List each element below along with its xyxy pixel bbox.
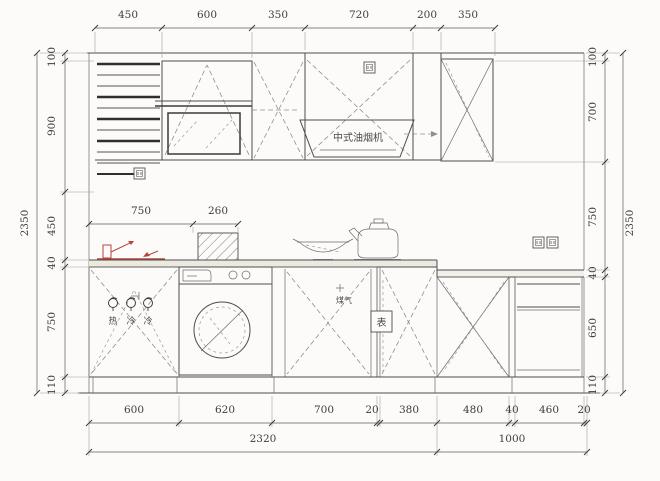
dim-bottom-3: 20: [365, 404, 378, 416]
dim-mid-0: 750: [131, 205, 151, 217]
outlet-icon: [364, 62, 375, 73]
dimension-right: 100 700 750 40 650 110 2350: [495, 47, 636, 396]
valve-label-hot: 热: [108, 315, 117, 327]
dim-right-5: 110: [587, 375, 599, 395]
dim-right-2: 750: [587, 207, 599, 227]
dim-left-total: 2350: [19, 210, 31, 237]
dim-left-0: 100: [46, 47, 58, 67]
open-shelving: [97, 64, 160, 179]
cad-canvas: 中式油烟机: [0, 0, 660, 481]
dim-left-4: 750: [46, 312, 58, 332]
wok-icon: [293, 239, 353, 260]
dim-bottom-total-1: 1000: [499, 433, 526, 445]
dim-right-1: 700: [587, 102, 599, 122]
dim-left-5: 110: [46, 375, 58, 395]
countertops: [89, 260, 584, 277]
wall-cabinet-tall-350: [441, 59, 493, 161]
washing-machine: [179, 267, 272, 375]
faucet-symbol: [97, 241, 165, 259]
dim-top-1: 600: [197, 9, 217, 21]
valve-label-cold: 冷: [126, 315, 135, 327]
dim-top-4: 200: [417, 9, 437, 21]
upper-cabinets: 中式油烟机: [95, 53, 493, 179]
wall-cabinet-350: [252, 61, 303, 160]
room-outline: [78, 53, 600, 393]
kitchen-elevation-drawing: 中式油烟机: [0, 0, 660, 481]
dim-mid-1: 260: [208, 205, 228, 217]
kettle-icon: [349, 219, 401, 260]
dim-bottom-total-0: 2320: [250, 433, 277, 445]
dim-top-2: 350: [268, 9, 288, 21]
dim-right-4: 650: [587, 318, 599, 338]
mid-items: [97, 219, 558, 260]
valve-icon: [109, 298, 118, 311]
filler-200: [404, 53, 441, 161]
dimension-bottom: 600 620 700 20 380 480 40 460 20 2320 10…: [86, 396, 591, 456]
base-cabinet-700: 煤气: [272, 267, 377, 377]
dim-top-3: 720: [349, 9, 369, 21]
dim-bottom-0: 600: [124, 404, 144, 416]
dim-bottom-4: 380: [399, 404, 419, 416]
range-hood-section: 中式油烟机: [300, 53, 414, 160]
dim-right-0: 100: [587, 47, 599, 67]
wall-cabinet-600: [155, 61, 252, 160]
gas-meter-label: 表: [377, 316, 387, 329]
base-cabinet-480: [437, 277, 509, 377]
dim-left-2: 450: [46, 216, 58, 236]
valve-icon: [127, 298, 136, 311]
dim-top-0: 450: [118, 9, 138, 21]
dim-left-1: 900: [46, 116, 58, 136]
dim-bottom-2: 700: [314, 404, 334, 416]
dim-left-3: 40: [46, 256, 58, 269]
outlet-icon: [134, 168, 145, 179]
dimension-left: 100 900 450 40 750 110 2350: [19, 47, 94, 396]
dim-right-total: 2350: [624, 210, 636, 237]
dim-bottom-5: 480: [463, 404, 483, 416]
sink-base-cabinet: 热 冷 冷: [89, 267, 179, 377]
valve-label-cold: 冷: [143, 315, 152, 327]
base-cabinets: 热 冷 冷 煤气: [89, 267, 584, 393]
tile-upstand: [198, 233, 238, 260]
dimension-top: 450 600 350 720 200 350: [92, 9, 498, 58]
dim-top-5: 350: [458, 9, 478, 21]
outlet-icon: [547, 237, 558, 248]
dim-bottom-1: 620: [215, 404, 235, 416]
dim-bottom-7: 460: [539, 404, 559, 416]
dim-bottom-6: 40: [505, 404, 518, 416]
gas-label: 煤气: [336, 295, 352, 305]
dim-bottom-8: 20: [577, 404, 590, 416]
outlet-icon: [533, 237, 544, 248]
gas-meter: 表: [371, 267, 392, 377]
drawer-unit-460: [515, 277, 582, 377]
range-hood-label: 中式油烟机: [333, 131, 383, 144]
dim-right-3: 40: [587, 266, 599, 279]
